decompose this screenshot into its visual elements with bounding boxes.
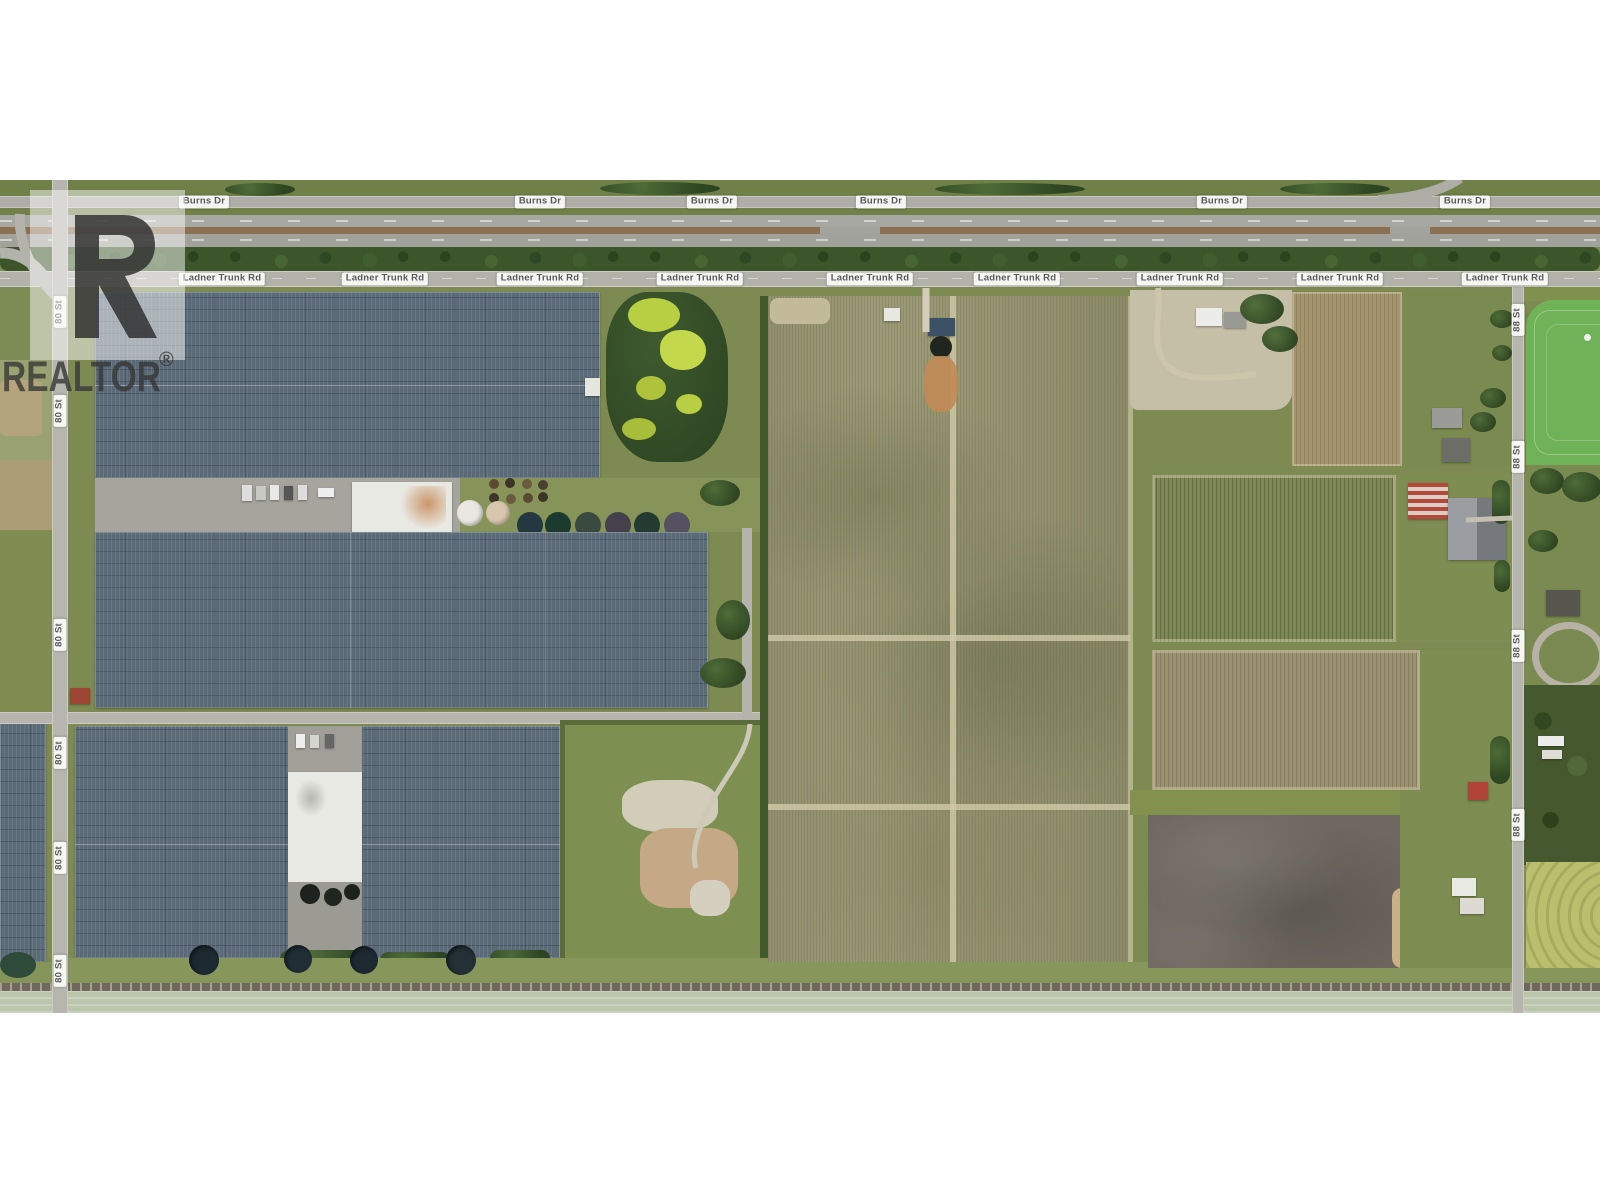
road-label-88-st: 88 St <box>1512 809 1525 841</box>
facility-yard <box>288 726 362 772</box>
road-label-burns-dr: Burns Dr <box>515 196 565 209</box>
field-track <box>768 635 1130 641</box>
pasture <box>768 962 1148 983</box>
truck <box>298 485 307 500</box>
road-label-burns-dr: Burns Dr <box>179 196 229 209</box>
berry-field-south <box>1152 650 1420 790</box>
greenhouse-block-middle <box>95 532 708 708</box>
pond <box>0 952 36 978</box>
highway-median-gap <box>1390 227 1430 234</box>
tree-row <box>700 480 740 506</box>
pasture <box>0 530 52 718</box>
digester-tank <box>538 492 548 502</box>
digester-tank <box>489 479 499 489</box>
road-label-ladner-trunk-rd: Ladner Trunk Rd <box>657 273 743 286</box>
tree-cluster <box>1530 468 1564 494</box>
tree-cluster <box>1240 294 1284 324</box>
median-verge <box>0 208 1600 215</box>
house <box>1546 590 1580 616</box>
road-label-ladner-trunk-rd: Ladner Trunk Rd <box>342 273 428 286</box>
road-label-80-st: 80 St <box>54 737 67 769</box>
tree-row <box>1492 480 1510 524</box>
irrigation-pond <box>284 945 312 973</box>
barn-red-white <box>1408 483 1448 519</box>
tree-row <box>1494 560 1510 592</box>
pasture <box>1148 968 1600 983</box>
farm-shed-red <box>70 688 90 704</box>
road-label-ladner-trunk-rd: Ladner Trunk Rd <box>179 273 265 286</box>
truck <box>270 485 279 500</box>
truck <box>325 734 334 748</box>
road-burns-dr <box>0 196 1600 208</box>
berry-field <box>1152 475 1396 642</box>
digester-tank <box>538 480 548 490</box>
digester-tank <box>505 478 515 488</box>
highway-median <box>0 227 1600 234</box>
hay-field <box>0 460 52 530</box>
tree-cluster <box>1490 310 1514 328</box>
road-label-burns-dr: Burns Dr <box>687 196 737 209</box>
house <box>1442 438 1470 462</box>
irrigation-pond <box>350 946 378 974</box>
tree-cluster <box>1262 326 1298 352</box>
well-head <box>1584 334 1591 341</box>
roof-stain <box>296 780 326 816</box>
tree-cluster <box>1528 530 1558 552</box>
lane-marking <box>0 220 1600 222</box>
greenhouse-west-strip <box>0 718 46 962</box>
packing-building <box>352 482 452 535</box>
road-label-88-st: 88 St <box>1512 630 1525 662</box>
satellite-map[interactable]: Burns Dr Burns Dr Burns Dr Burns Dr Burn… <box>0 180 1600 1013</box>
algae-pond <box>622 418 656 440</box>
irrigation-pond <box>446 945 476 975</box>
truck <box>284 486 293 500</box>
digester-tank <box>506 494 516 504</box>
railway-line <box>0 983 1600 991</box>
crop-field-brown <box>1292 292 1402 466</box>
storage-tank-white <box>457 500 483 526</box>
digester-tank <box>523 493 533 503</box>
road-label-burns-dr: Burns Dr <box>1440 196 1490 209</box>
trailer <box>1542 750 1562 759</box>
water-tank <box>930 336 952 358</box>
roof-stain <box>400 486 446 530</box>
road-label-ladner-trunk-rd: Ladner Trunk Rd <box>974 273 1060 286</box>
farm-shed <box>1460 898 1484 914</box>
truck <box>318 488 334 497</box>
top-margin <box>0 0 1600 180</box>
storage-tank-beige <box>486 501 510 525</box>
irrigation-pond <box>189 945 219 975</box>
trailer <box>1538 736 1564 746</box>
algae-pond <box>628 298 680 332</box>
tree-cluster <box>1470 412 1496 432</box>
settling-tank <box>344 884 360 900</box>
farm-shed <box>884 308 900 321</box>
road-label-burns-dr: Burns Dr <box>856 196 906 209</box>
tree-cluster <box>1480 388 1506 408</box>
greenhouse-gutter <box>350 532 351 708</box>
registered-trademark-icon: ® <box>159 350 174 370</box>
drainage-field-strip <box>0 991 1600 1013</box>
mown-field <box>1526 862 1600 970</box>
truck <box>242 485 252 501</box>
road-label-80-st: 80 St <box>54 619 67 651</box>
tree-cluster <box>225 183 295 196</box>
gravel-patch <box>770 298 830 324</box>
barn-red-roof <box>1468 782 1488 800</box>
road-label-ladner-trunk-rd: Ladner Trunk Rd <box>497 273 583 286</box>
house <box>1432 408 1462 428</box>
field-track <box>768 804 1130 810</box>
road-label-ladner-trunk-rd: Ladner Trunk Rd <box>1297 273 1383 286</box>
road-label-88-st: 88 St <box>1512 441 1525 473</box>
algae-pond <box>636 376 666 400</box>
facility-building <box>288 772 362 882</box>
settling-tank <box>324 888 342 906</box>
bottom-margin <box>0 1013 1600 1200</box>
digester-tank <box>522 479 532 489</box>
greenhouse-outbuilding <box>585 378 600 396</box>
pasture <box>1524 287 1600 301</box>
rubble-patch <box>690 880 730 916</box>
tree-row <box>1490 736 1510 784</box>
tree-cluster <box>935 183 1085 195</box>
road-label-ladner-trunk-rd: Ladner Trunk Rd <box>1137 273 1223 286</box>
truck <box>256 486 266 500</box>
pasture <box>68 958 768 983</box>
truck <box>310 735 319 748</box>
realtor-logo-r-icon <box>73 215 157 338</box>
farm-shed <box>1196 308 1222 326</box>
road-label-80-st: 80 St <box>54 842 67 874</box>
road-label-ladner-trunk-rd: Ladner Trunk Rd <box>1462 273 1548 286</box>
tree-cluster <box>1492 345 1512 361</box>
greenhouse-gutter <box>95 385 600 386</box>
mowing-line <box>1546 324 1600 441</box>
tree-cluster <box>1280 183 1390 195</box>
realtor-watermark-text: REALTOR <box>2 356 161 399</box>
tree-cluster <box>600 182 720 195</box>
algae-pond <box>676 394 702 414</box>
circular-driveway <box>1532 622 1600 690</box>
highway-median-gap <box>820 227 880 234</box>
barn-blue-roof <box>928 318 955 336</box>
bright-pasture <box>1526 300 1600 465</box>
road-label-burns-dr: Burns Dr <box>1197 196 1247 209</box>
rubble-patch <box>622 780 718 832</box>
tree-row <box>716 600 750 640</box>
hedgerow <box>760 296 768 962</box>
truck <box>296 734 305 748</box>
dirt-pile <box>924 356 958 412</box>
road-label-88-st: 88 St <box>1512 304 1525 336</box>
tree-line <box>0 247 1600 271</box>
tree-row <box>700 658 746 688</box>
screenshot-page: Burns Dr Burns Dr Burns Dr Burns Dr Burn… <box>0 0 1600 1200</box>
road-label-80-st: 80 St <box>54 955 67 987</box>
greenhouse-gutter <box>545 532 546 708</box>
bare-soil-field <box>1148 815 1400 968</box>
algae-pond <box>660 330 706 370</box>
lane-marking <box>0 239 1600 241</box>
settling-tank <box>300 884 320 904</box>
farm-shed <box>1452 878 1476 896</box>
tree-cluster <box>1562 472 1600 502</box>
scrub-band <box>1524 685 1600 865</box>
road-label-ladner-trunk-rd: Ladner Trunk Rd <box>827 273 913 286</box>
